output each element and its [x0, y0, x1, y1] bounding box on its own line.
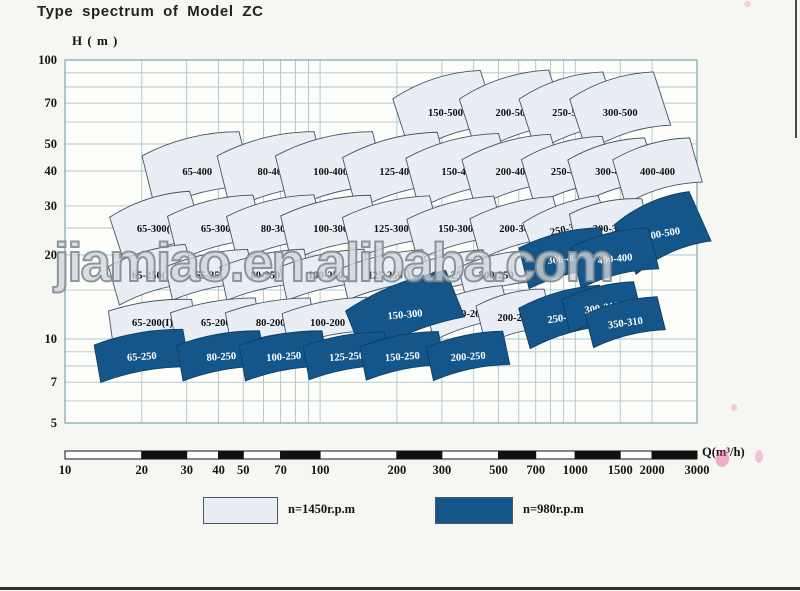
region-label: 80-250 — [206, 351, 236, 364]
x-tick-label: 1500 — [608, 463, 633, 477]
page-title: Type spectrum of Model ZC — [37, 3, 264, 20]
x-tick-label: 200 — [388, 463, 407, 477]
legend-label-1450rpm: n=1450r.p.m — [288, 502, 355, 517]
scale-bar-segment — [281, 451, 321, 459]
y-tick-label: 100 — [38, 53, 57, 67]
x-tick-label: 300 — [433, 463, 452, 477]
region-label: 150-300 — [438, 224, 473, 235]
x-tick-label: 30 — [180, 463, 193, 477]
region-label: 65-300 — [201, 224, 231, 235]
spectrum-chart: .tick{font:bold 12.5px "Liberation Serif… — [0, 0, 800, 591]
scale-bar-segment — [187, 451, 219, 459]
x-tick-label: 3000 — [685, 463, 710, 477]
x-tick-label: 50 — [237, 463, 250, 477]
scale-bar-segment — [620, 451, 652, 459]
scan-noise-mark — [731, 404, 737, 411]
scale-bar-segment — [499, 451, 536, 459]
x-tick-label: 1000 — [563, 463, 588, 477]
x-tick-label: 70 — [274, 463, 287, 477]
region-label: 100-250 — [308, 271, 343, 282]
scale-bar-segment — [65, 451, 142, 459]
scale-bar-segment — [320, 451, 397, 459]
x-tick-label: 10 — [59, 463, 72, 477]
scan-edge-bottom — [0, 587, 800, 590]
region-label: 125-250 — [368, 271, 403, 282]
scale-bar-segment — [219, 451, 244, 459]
y-tick-label: 20 — [45, 248, 58, 262]
region-label: 65-400 — [182, 167, 212, 178]
region-label: 400-400 — [640, 167, 675, 178]
x-tick-label: 700 — [526, 463, 545, 477]
scale-bar-segment — [442, 451, 499, 459]
y-axis-title: H ( m ) — [72, 33, 118, 49]
y-tick-label: 10 — [45, 332, 58, 346]
scale-bar-segment — [575, 451, 620, 459]
y-tick-label: 5 — [51, 416, 57, 430]
scan-edge-right — [795, 0, 797, 138]
scan-noise-mark — [744, 1, 751, 7]
region-label: 100-400 — [313, 167, 348, 178]
x-tick-label: 40 — [212, 463, 225, 477]
x-tick-label: 2000 — [640, 463, 665, 477]
x-tick-label: 500 — [489, 463, 508, 477]
legend-swatch-1450rpm — [203, 497, 278, 524]
y-tick-label: 70 — [45, 96, 58, 110]
scale-bar-segment — [536, 451, 576, 459]
y-tick-label: 7 — [51, 375, 57, 389]
y-tick-label: 40 — [45, 164, 58, 178]
x-tick-label: 20 — [136, 463, 149, 477]
scale-bar-segment — [397, 451, 442, 459]
region-label: 80-200 — [256, 318, 286, 329]
y-tick-label: 50 — [45, 137, 58, 151]
region-label: 150-500 — [428, 108, 463, 119]
region-label: 100-200 — [310, 318, 345, 329]
region-label: 125-300 — [374, 224, 409, 235]
x-tick-label: 100 — [311, 463, 330, 477]
legend-label-980rpm: n=980r.p.m — [523, 502, 584, 517]
region-label: 65-250 — [127, 351, 157, 364]
scan-noise-mark — [755, 450, 763, 463]
region-label: 300-500 — [603, 108, 638, 119]
region-label: 100-300 — [313, 224, 348, 235]
region-label: 65-200(I) — [132, 318, 173, 329]
region-label: 200-250 — [479, 271, 514, 282]
scale-bar-segment — [652, 451, 697, 459]
scale-bar-segment — [142, 451, 187, 459]
y-tick-label: 30 — [45, 199, 58, 213]
region-label: 65-250 — [195, 271, 225, 282]
legend-swatch-980rpm — [435, 497, 513, 524]
region-label: 80-250 — [251, 271, 281, 282]
scale-bar-segment — [243, 451, 280, 459]
